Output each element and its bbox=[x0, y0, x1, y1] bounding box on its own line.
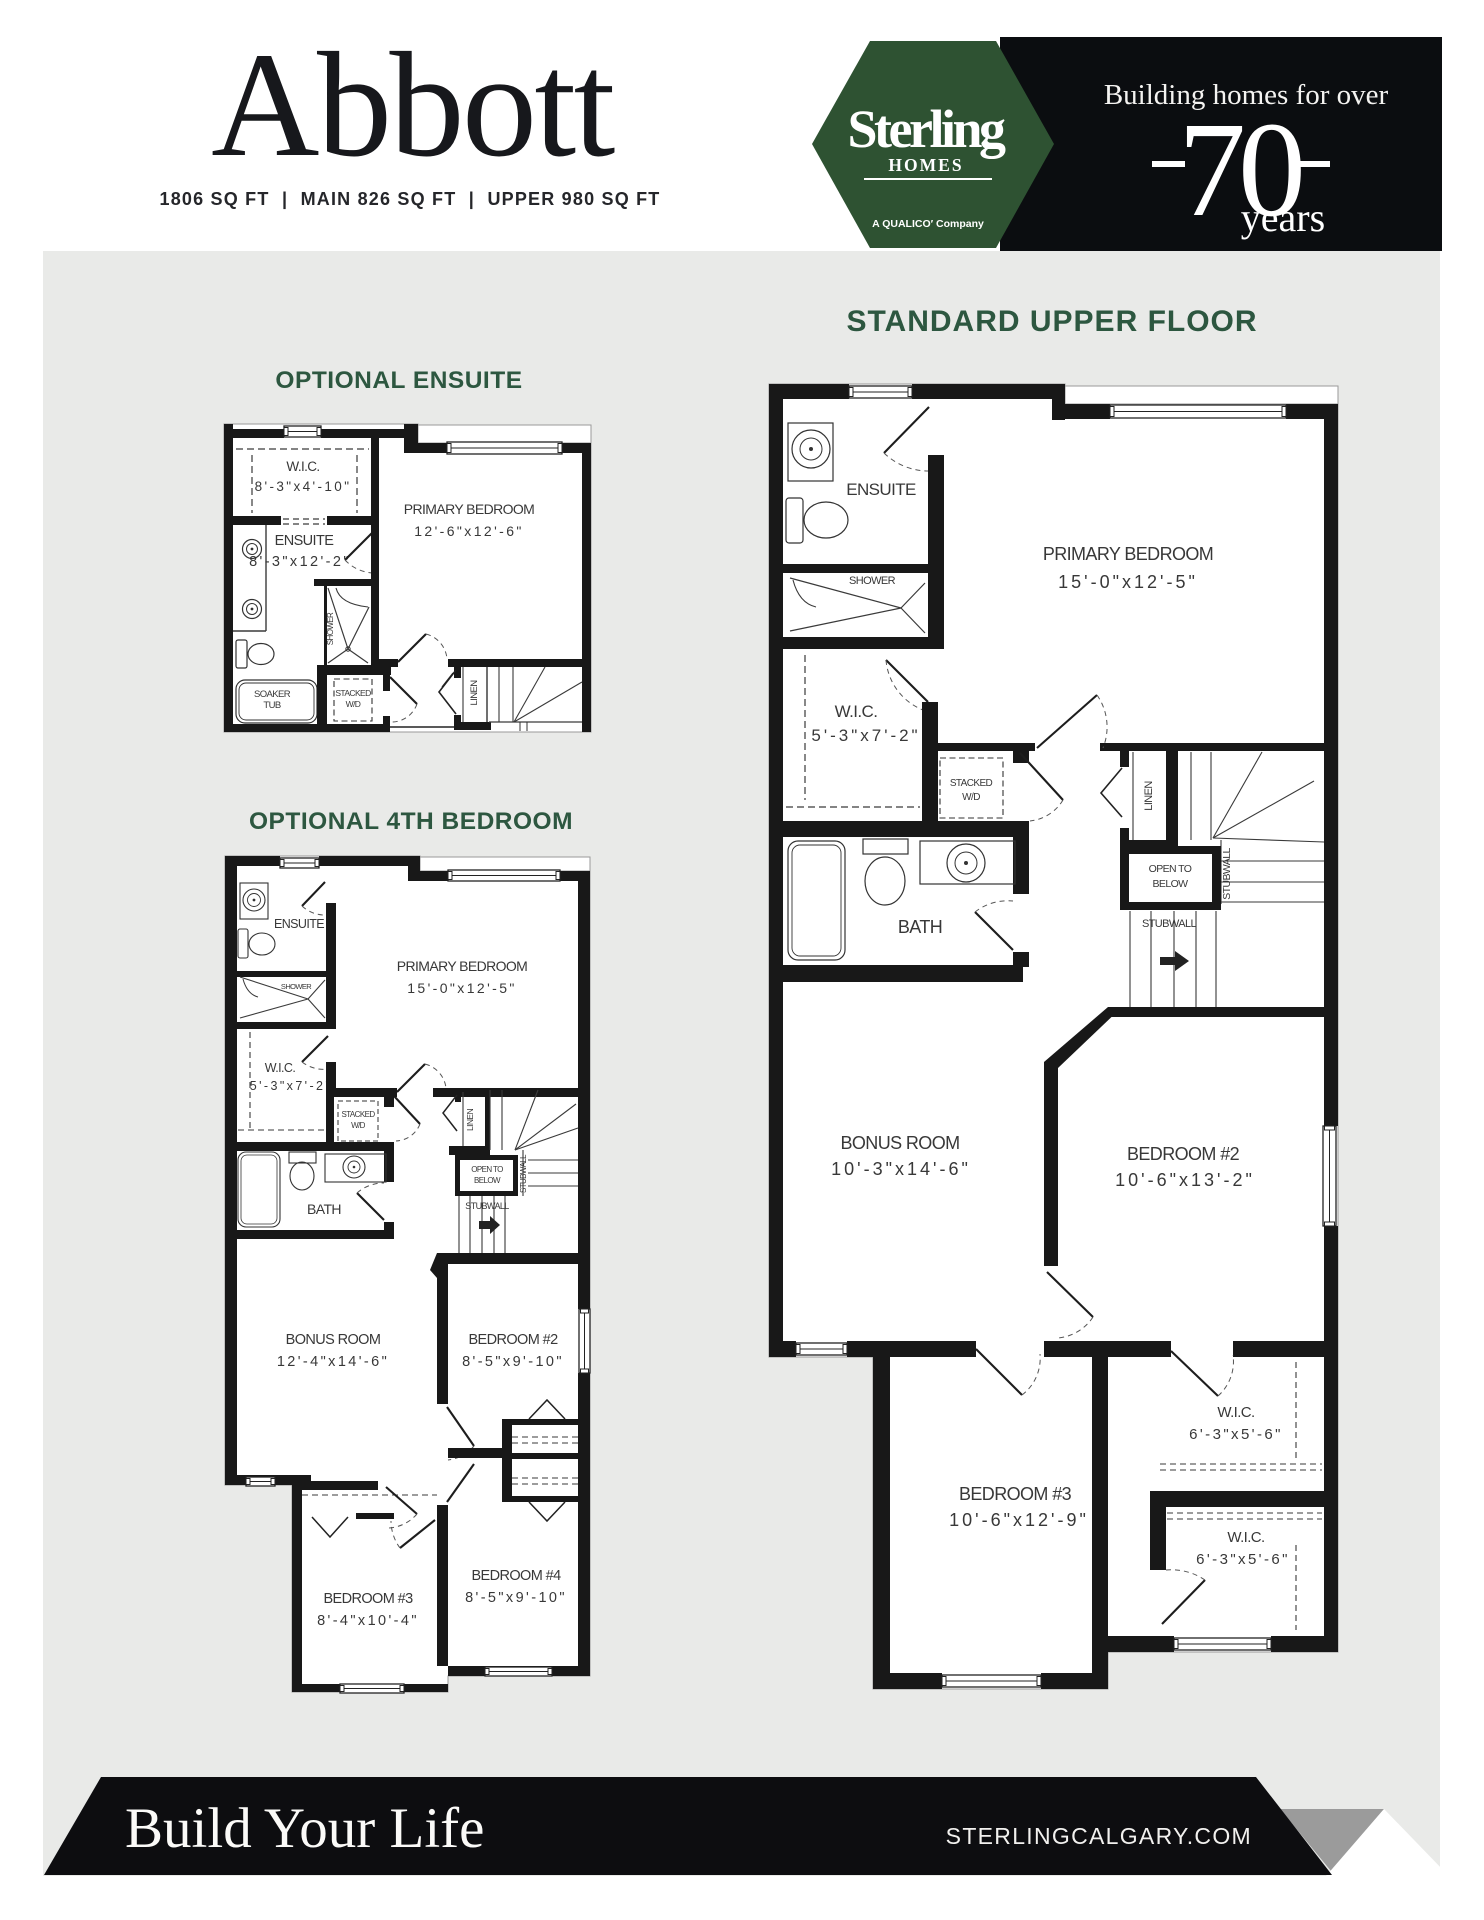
svg-text:W/D: W/D bbox=[351, 1121, 366, 1130]
svg-text:BEDROOM #4: BEDROOM #4 bbox=[471, 1568, 561, 1584]
svg-text:5'-3"x7'-2": 5'-3"x7'-2" bbox=[811, 726, 920, 745]
svg-text:6'-3"x5'-6": 6'-3"x5'-6" bbox=[1189, 1426, 1283, 1443]
svg-text:BEDROOM #3: BEDROOM #3 bbox=[959, 1484, 1072, 1504]
svg-text:8'-3"x12'-2": 8'-3"x12'-2" bbox=[249, 554, 351, 570]
svg-text:W.I.C.: W.I.C. bbox=[1227, 1529, 1264, 1546]
svg-text:Abbott: Abbott bbox=[211, 22, 615, 188]
svg-text:W/D: W/D bbox=[346, 699, 361, 709]
svg-text:PRIMARY BEDROOM: PRIMARY BEDROOM bbox=[404, 501, 535, 517]
svg-text:W.I.C.: W.I.C. bbox=[265, 1061, 296, 1075]
svg-text:BEDROOM #2: BEDROOM #2 bbox=[468, 1332, 558, 1348]
svg-text:6'-3"x5'-6": 6'-3"x5'-6" bbox=[1196, 1551, 1290, 1568]
svg-text:BONUS ROOM: BONUS ROOM bbox=[286, 1332, 381, 1348]
svg-text:ENSUITE: ENSUITE bbox=[274, 917, 324, 931]
svg-text:15'-0"x12'-5": 15'-0"x12'-5" bbox=[1058, 572, 1198, 592]
svg-text:SOAKER: SOAKER bbox=[254, 689, 291, 700]
svg-text:OPEN TO: OPEN TO bbox=[1149, 863, 1192, 875]
svg-text:10'-6"x12'-9": 10'-6"x12'-9" bbox=[949, 1510, 1089, 1530]
svg-text:STERLINGCALGARY.COM: STERLINGCALGARY.COM bbox=[946, 1823, 1252, 1849]
svg-text:PRIMARY BEDROOM: PRIMARY BEDROOM bbox=[397, 958, 528, 974]
svg-text:LINEN: LINEN bbox=[465, 1109, 475, 1131]
svg-text:A QUALICO′ Company: A QUALICO′ Company bbox=[872, 218, 984, 230]
svg-text:8'-3"x4'-10": 8'-3"x4'-10" bbox=[255, 479, 352, 494]
svg-text:12'-4"x14'-6": 12'-4"x14'-6" bbox=[277, 1354, 389, 1370]
svg-text:Sterling: Sterling bbox=[848, 99, 1006, 159]
svg-text:BATH: BATH bbox=[898, 917, 942, 937]
svg-text:years: years bbox=[1241, 195, 1325, 240]
svg-text:Build Your Life: Build Your Life bbox=[125, 1797, 484, 1860]
svg-text:10'-3"x14'-6": 10'-3"x14'-6" bbox=[831, 1159, 971, 1179]
svg-text:ENSUITE: ENSUITE bbox=[275, 533, 335, 549]
svg-text:STUBWALL: STUBWALL bbox=[1221, 848, 1233, 900]
svg-text:W.I.C.: W.I.C. bbox=[1217, 1404, 1254, 1421]
svg-text:LINEN: LINEN bbox=[469, 680, 480, 706]
svg-text:BATH: BATH bbox=[307, 1201, 341, 1217]
svg-text:SHOWER: SHOWER bbox=[326, 612, 335, 645]
svg-text:W.I.C.: W.I.C. bbox=[286, 459, 319, 474]
svg-text:OPEN TO: OPEN TO bbox=[471, 1165, 503, 1174]
svg-text:SHOWER: SHOWER bbox=[281, 982, 312, 991]
svg-text:LINEN: LINEN bbox=[1143, 781, 1155, 811]
svg-text:HOMES: HOMES bbox=[888, 155, 963, 175]
svg-text:8'-5"x9'-10": 8'-5"x9'-10" bbox=[462, 1354, 564, 1370]
svg-text:W.I.C.: W.I.C. bbox=[835, 702, 878, 721]
svg-text:OPTIONAL ENSUITE: OPTIONAL ENSUITE bbox=[275, 367, 522, 394]
svg-text:10'-6"x13'-2": 10'-6"x13'-2" bbox=[1115, 1170, 1255, 1190]
svg-text:TUB: TUB bbox=[263, 700, 280, 711]
svg-text:STACKED: STACKED bbox=[342, 1110, 376, 1119]
svg-text:5'-3"x7'-2": 5'-3"x7'-2" bbox=[250, 1079, 332, 1093]
svg-text:OPTIONAL 4TH BEDROOM: OPTIONAL 4TH BEDROOM bbox=[249, 808, 573, 835]
svg-text:8'-4"x10'-4": 8'-4"x10'-4" bbox=[317, 1613, 419, 1629]
svg-text:BONUS ROOM: BONUS ROOM bbox=[840, 1133, 959, 1153]
svg-text:BELOW: BELOW bbox=[1153, 878, 1189, 890]
svg-text:SHOWER: SHOWER bbox=[849, 575, 896, 587]
svg-text:PRIMARY BEDROOM: PRIMARY BEDROOM bbox=[1043, 544, 1213, 564]
svg-text:ENSUITE: ENSUITE bbox=[846, 480, 916, 499]
svg-text:BEDROOM #2: BEDROOM #2 bbox=[1127, 1144, 1240, 1164]
svg-text:12'-6"x12'-6": 12'-6"x12'-6" bbox=[414, 523, 524, 539]
svg-text:BEDROOM #3: BEDROOM #3 bbox=[323, 1591, 413, 1607]
svg-text:STACKED: STACKED bbox=[335, 688, 371, 698]
svg-text:15'-0"x12'-5": 15'-0"x12'-5" bbox=[407, 980, 517, 996]
svg-text:BELOW: BELOW bbox=[474, 1176, 501, 1185]
svg-text:STUBWALL: STUBWALL bbox=[465, 1201, 509, 1211]
svg-text:STANDARD UPPER FLOOR: STANDARD UPPER FLOOR bbox=[846, 305, 1257, 338]
svg-text:1806 SQ FT | MAIN 826 SQ FT: 1806 SQ FT | MAIN 826 SQ FT | UPPER 980 … bbox=[160, 189, 661, 209]
svg-text:STUBWALL: STUBWALL bbox=[1142, 918, 1197, 930]
svg-text:W/D: W/D bbox=[962, 792, 980, 803]
svg-text:STACKED: STACKED bbox=[950, 778, 993, 789]
svg-text:8'-5"x9'-10": 8'-5"x9'-10" bbox=[465, 1590, 567, 1606]
